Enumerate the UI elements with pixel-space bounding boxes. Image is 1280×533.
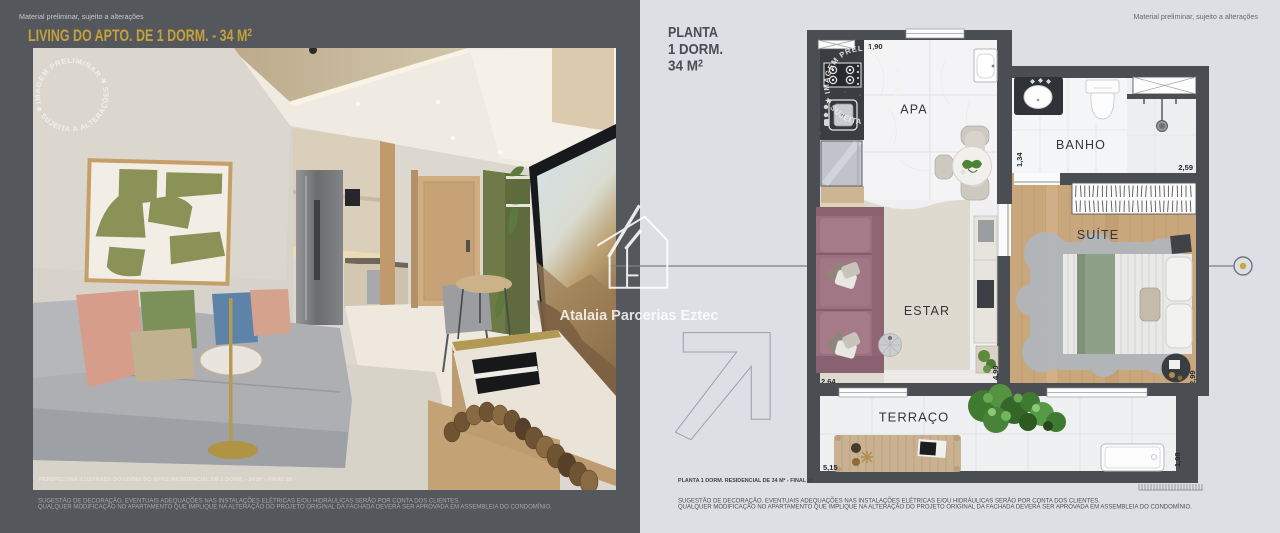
svg-text:Atalaia Parcerias Eztec: Atalaia Parcerias Eztec [560,308,719,324]
svg-text:2,59: 2,59 [1178,163,1193,172]
svg-text:SUGESTÃO DE DECORAÇÃO. EVENTUA: SUGESTÃO DE DECORAÇÃO. EVENTUAIS ADEQUAÇ… [678,498,1100,505]
svg-text:BANHO: BANHO [1056,138,1106,152]
svg-text:LIVING DO APTO. DE 1 DORM. - 3: LIVING DO APTO. DE 1 DORM. - 34 M2 [28,27,252,45]
svg-text:QUALQUER MODIFICAÇÃO NO APARTA: QUALQUER MODIFICAÇÃO NO APARTAMENTO QUE … [38,504,552,511]
svg-text:ESTAR: ESTAR [904,304,950,318]
svg-text:PLANTA 1 DORM. RESIDENCIAL DE: PLANTA 1 DORM. RESIDENCIAL DE 34 M² - FI… [678,478,813,484]
svg-text:PERSPECTIVA ILUSTRADA DO LIVIN: PERSPECTIVA ILUSTRADA DO LIVING DO APTO.… [39,476,292,483]
svg-text:APA: APA [900,103,927,117]
svg-text:Material preliminar, sujeito a: Material preliminar, sujeito a alteraçõe… [19,12,144,21]
svg-text:SUGESTÃO DE DECORAÇÃO. EVENTUA: SUGESTÃO DE DECORAÇÃO. EVENTUAIS ADEQUAÇ… [38,498,460,505]
svg-text:TERRAÇO: TERRAÇO [879,410,950,425]
svg-text:4,99: 4,99 [991,365,1000,380]
svg-text:2,99: 2,99 [1188,370,1197,385]
svg-text:Material preliminar, sujeito a: Material preliminar, sujeito a alteraçõe… [1133,12,1258,21]
svg-text:5,15: 5,15 [823,463,838,472]
svg-text:PLANTA: PLANTA [668,24,718,41]
svg-text:QUALQUER MODIFICAÇÃO NO APARTA: QUALQUER MODIFICAÇÃO NO APARTAMENTO QUE … [678,504,1192,511]
svg-text:1,34: 1,34 [1015,152,1024,167]
svg-text:1 DORM.: 1 DORM. [668,41,723,58]
svg-text:1,08: 1,08 [1173,452,1182,467]
svg-text:SUÍTE: SUÍTE [1077,227,1119,242]
